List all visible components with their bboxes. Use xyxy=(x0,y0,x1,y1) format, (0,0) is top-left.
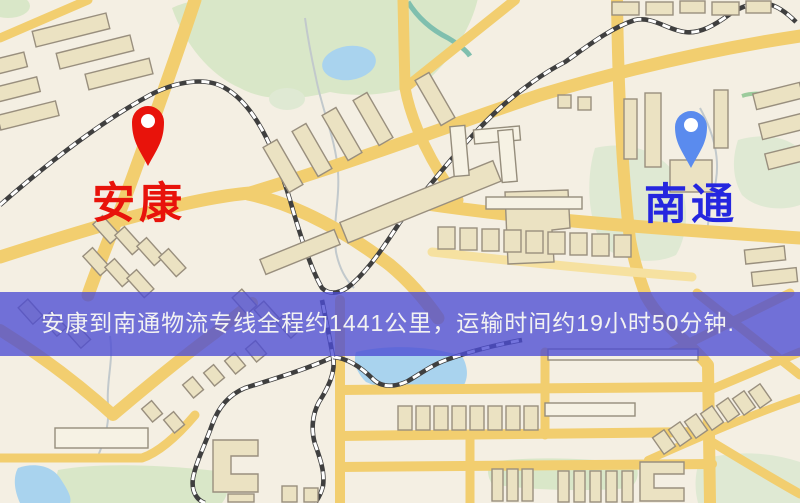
origin-pin-hole xyxy=(141,114,155,128)
map-canvas[interactable]: 安康 南通 安康到南通物流专线全程约1441公里，运输时间约19小时50分钟. xyxy=(0,0,800,503)
destination-pin-hole xyxy=(684,118,698,132)
map-route-graphic: 安康 南通 安康到南通物流专线全程约1441公里，运输时间约19小时50分钟. xyxy=(0,0,800,503)
destination-label: 南通 xyxy=(644,181,738,229)
origin-label: 安康 xyxy=(92,180,186,228)
route-info-banner: 安康到南通物流专线全程约1441公里，运输时间约19小时50分钟. xyxy=(0,292,800,356)
route-info-text: 安康到南通物流专线全程约1441公里，运输时间约19小时50分钟. xyxy=(41,310,735,336)
